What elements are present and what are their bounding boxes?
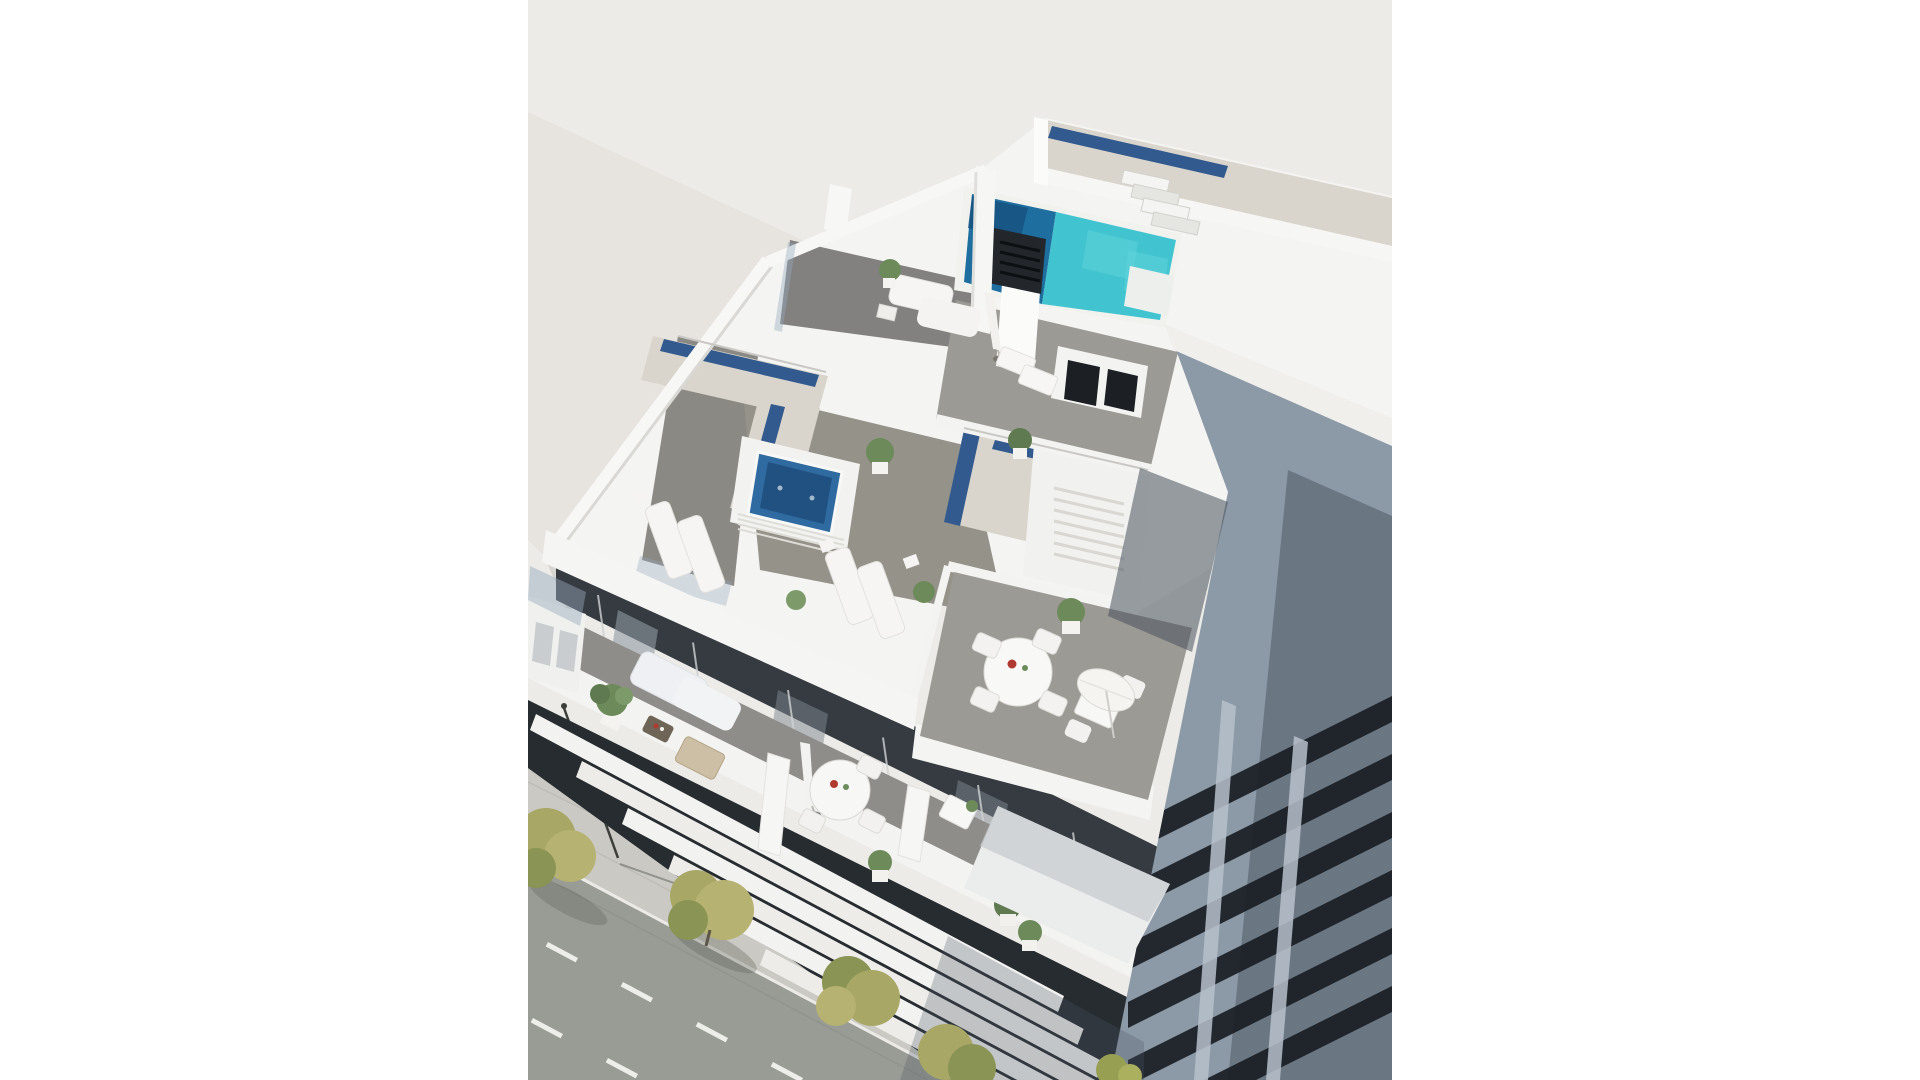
plant-foliage [590, 684, 610, 704]
plant-pot [1000, 914, 1016, 926]
plant-pot [1022, 940, 1037, 951]
potted-plant [866, 438, 894, 466]
plant-pot [883, 278, 895, 288]
roof-end-wall [1034, 117, 1048, 186]
plant-pot [872, 870, 888, 882]
table-decor-white [660, 727, 664, 731]
render-svg [528, 0, 1392, 1080]
table-plant [843, 784, 849, 790]
table-flower-red [1008, 660, 1017, 669]
plant-pot [1013, 448, 1027, 459]
potted-plant [913, 581, 935, 603]
plant-foliage [615, 687, 633, 705]
street-lamp-head [561, 703, 567, 709]
scene [528, 0, 1392, 1080]
potted-plant [786, 590, 806, 610]
potted-plant [879, 259, 901, 281]
tree-foliage [668, 900, 708, 940]
roof-room-window [1064, 360, 1100, 406]
tree-foliage [816, 986, 856, 1026]
render-image [528, 0, 1392, 1080]
table-plant [966, 800, 978, 812]
table-decor-red [654, 724, 659, 729]
hot-tub-jet [778, 486, 783, 491]
table-flower-red [830, 780, 838, 788]
hot-tub-jet [810, 496, 815, 501]
table-plant [1022, 665, 1028, 671]
roof-room-window [1104, 369, 1138, 412]
plant-pot [872, 462, 888, 474]
plant-pot [1062, 621, 1080, 634]
